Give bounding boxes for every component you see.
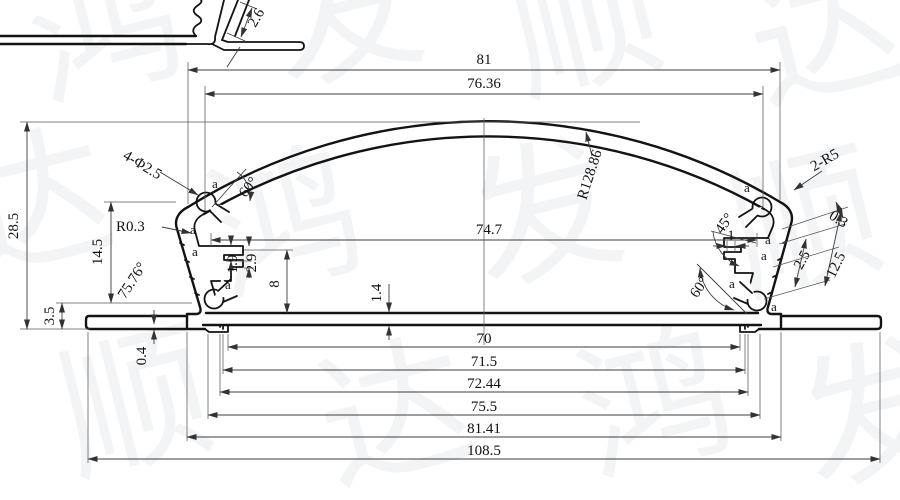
extrusion-cross-section-drawing: 2.6: [0, 0, 900, 500]
dim-wall-thickness: 2.5: [791, 248, 814, 272]
dim-holes: 4-Φ2.5: [120, 148, 164, 183]
point-label-a: a: [761, 248, 767, 263]
dim-wall-length: 12.5: [823, 250, 849, 281]
dim-wall-angle: 75.76°: [115, 260, 150, 302]
dim-inner-width: 74.7: [476, 222, 503, 238]
dim-right-gap: 1: [727, 228, 735, 244]
point-label-a: a: [192, 244, 198, 259]
technical-drawing-page: 鸿 发 顺 达 达 鸿 发 顺 顺 达 鸿 发 2.6: [0, 0, 900, 500]
dim-overall-width: 108.5: [467, 443, 501, 459]
point-label-a: a: [729, 276, 735, 291]
dimension-lines: [20, 62, 880, 463]
detail-view: 2.6: [0, 0, 304, 67]
point-label-a: a: [744, 180, 750, 195]
dim-arc-radius: R128.86: [575, 147, 606, 201]
dim-side-height: 14.5: [90, 239, 106, 265]
point-label-a: a: [771, 299, 777, 314]
dim-top-width: 81: [477, 52, 492, 68]
dim-feet-inner-width: 75.5: [471, 399, 497, 415]
dim-step-2-9: 2.9: [244, 254, 260, 273]
dim-channel-step1: 71.5: [471, 354, 497, 370]
point-label-a: a: [225, 277, 231, 292]
dim-top-corner-radius: 2-R5: [808, 146, 842, 175]
dim-feet-outer-width: 81.41: [467, 421, 501, 437]
dim-channel-step2: 72.44: [467, 376, 501, 392]
dim-overall-height: 28.5: [6, 213, 22, 239]
detail-thickness-label: 2.6: [245, 5, 268, 30]
dim-flange-height: 3.5: [42, 307, 58, 326]
dim-base-lip: 0.4: [134, 346, 150, 365]
dim-corner-fillet: R0.3: [116, 219, 145, 235]
point-label-a: a: [765, 232, 771, 247]
dim-step-height: 8: [267, 280, 283, 288]
dim-wall-offset: 0.3: [826, 208, 850, 232]
point-label-a: a: [190, 222, 196, 237]
dim-base-thickness: 1.4: [369, 283, 385, 302]
dim-step-1-9: 1.9: [225, 255, 241, 274]
dim-right-slot-angle: 60°: [687, 275, 712, 301]
dim-top-inner-width: 76.36: [467, 76, 501, 92]
point-label-a: a: [212, 176, 218, 191]
dim-channel-width: 70: [477, 331, 492, 347]
